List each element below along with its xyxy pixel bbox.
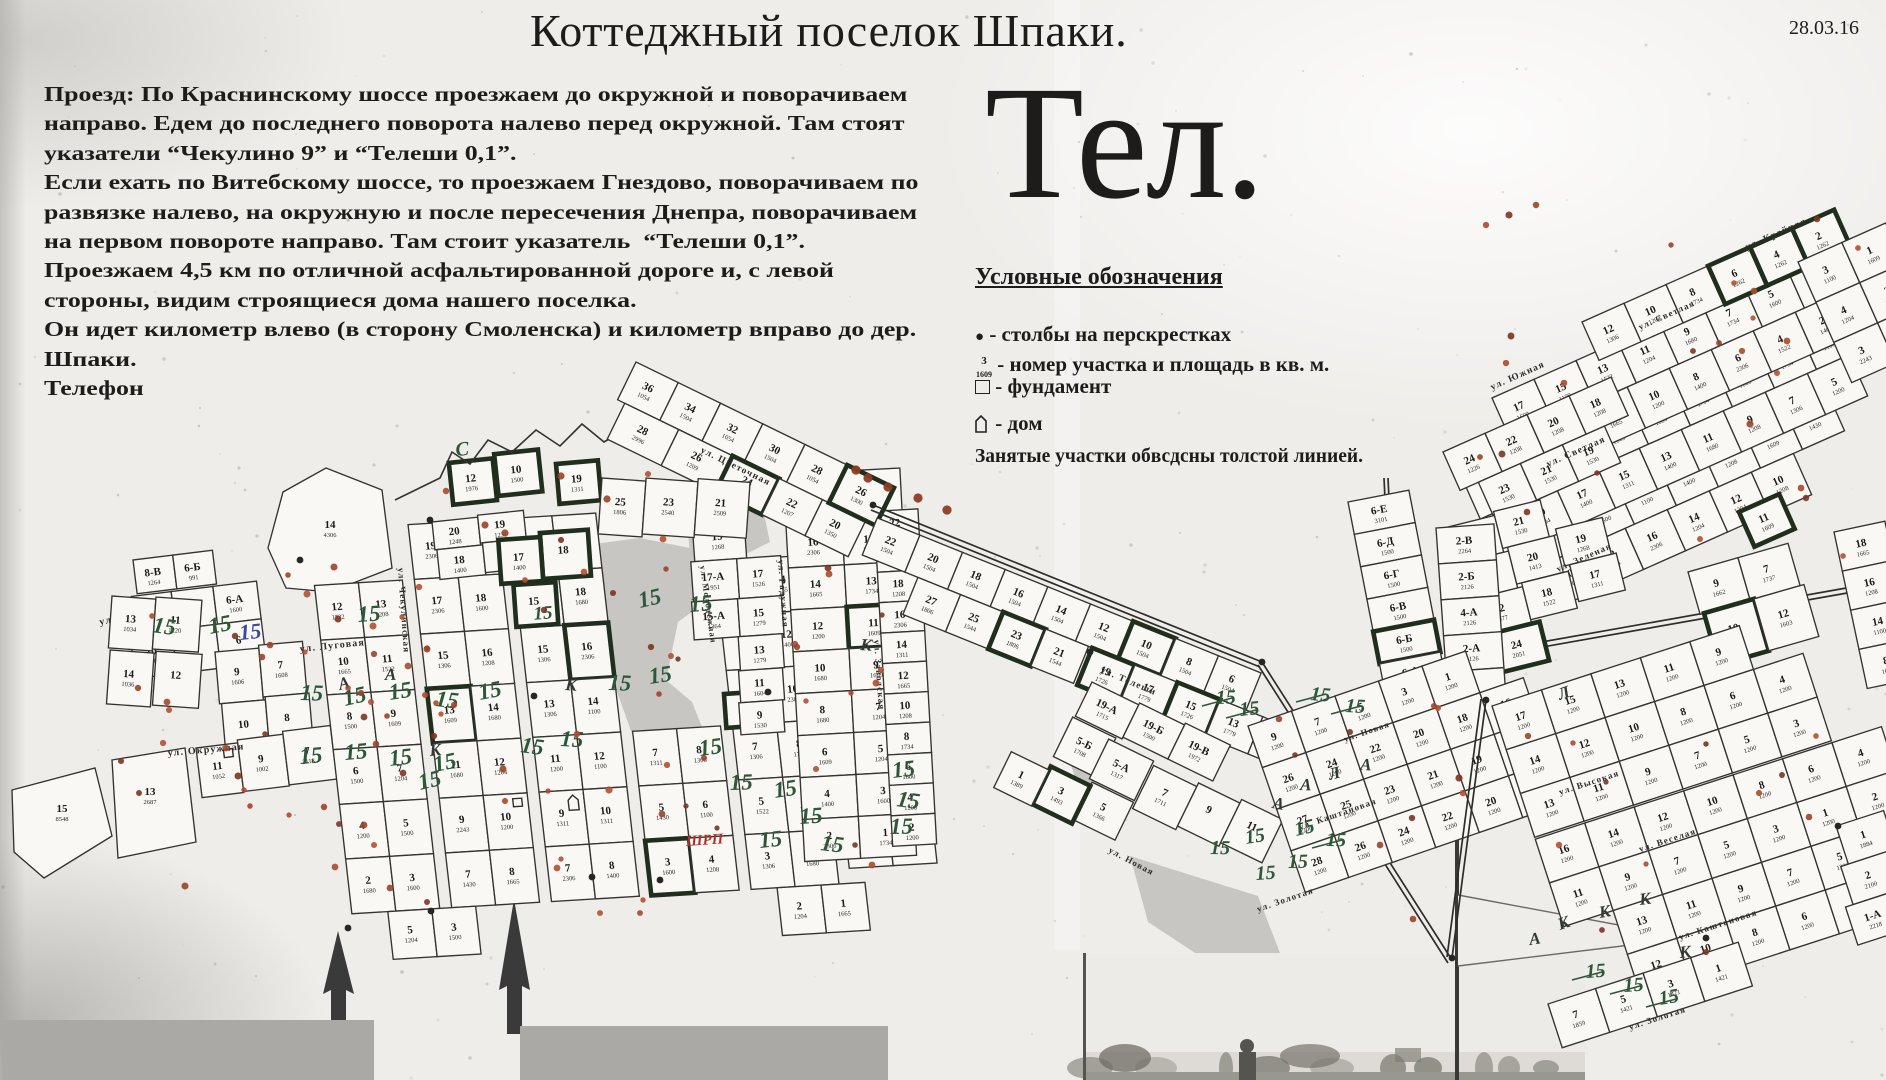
svg-text:15: 15 — [1255, 862, 1276, 885]
svg-text:15: 15 — [434, 686, 459, 713]
svg-text:1680: 1680 — [363, 887, 377, 895]
svg-text:1200: 1200 — [500, 824, 514, 832]
svg-text:10: 10 — [510, 463, 523, 476]
svg-text:1500: 1500 — [510, 476, 524, 484]
svg-text:15: 15 — [647, 661, 674, 689]
svg-text:2243: 2243 — [456, 826, 470, 834]
svg-text:6-Б: 6-Б — [184, 561, 202, 575]
svg-text:1665: 1665 — [809, 591, 822, 599]
svg-text:15: 15 — [688, 590, 713, 617]
svg-text:1204: 1204 — [394, 775, 409, 783]
svg-text:10: 10 — [500, 811, 513, 824]
svg-text:1204: 1204 — [872, 714, 886, 722]
svg-text:2306: 2306 — [807, 549, 821, 557]
svg-text:15: 15 — [819, 830, 845, 858]
svg-text:15: 15 — [890, 814, 913, 839]
svg-text:2509: 2509 — [713, 510, 726, 518]
svg-text:2264: 2264 — [1458, 548, 1472, 556]
svg-text:1034: 1034 — [123, 626, 137, 634]
svg-text:15: 15 — [343, 738, 368, 765]
svg-text:1600: 1600 — [475, 605, 489, 613]
svg-text:1200: 1200 — [550, 766, 564, 774]
svg-text:1606: 1606 — [231, 679, 245, 687]
svg-text:14: 14 — [325, 519, 337, 531]
svg-text:1976: 1976 — [465, 485, 479, 493]
svg-text:ШРП: ШРП — [684, 831, 725, 850]
svg-text:С: С — [454, 438, 470, 461]
svg-text:6-А: 6-А — [225, 593, 243, 607]
svg-text:15: 15 — [300, 680, 324, 706]
svg-text:15: 15 — [758, 826, 783, 853]
svg-text:1248: 1248 — [448, 538, 462, 546]
svg-text:2126: 2126 — [1463, 619, 1477, 627]
svg-text:1311: 1311 — [571, 486, 584, 494]
svg-text:1204: 1204 — [794, 913, 809, 921]
svg-text:18: 18 — [557, 544, 569, 557]
svg-text:1680: 1680 — [814, 675, 827, 683]
svg-text:2540: 2540 — [661, 509, 674, 517]
svg-text:1279: 1279 — [753, 657, 766, 665]
svg-text:1680: 1680 — [488, 714, 502, 722]
svg-text:18: 18 — [892, 578, 904, 591]
svg-text:1208: 1208 — [899, 713, 912, 721]
svg-text:17: 17 — [752, 568, 764, 581]
svg-text:1522: 1522 — [756, 808, 770, 816]
svg-text:16: 16 — [481, 647, 494, 660]
svg-text:15: 15 — [476, 676, 503, 705]
svg-text:11: 11 — [212, 760, 224, 773]
svg-text:14: 14 — [809, 578, 821, 591]
svg-text:А: А — [1299, 775, 1312, 794]
svg-text:15: 15 — [151, 612, 177, 640]
svg-text:991: 991 — [188, 574, 199, 582]
svg-text:1306: 1306 — [762, 863, 777, 871]
svg-text:1500: 1500 — [350, 778, 364, 786]
svg-text:1306: 1306 — [749, 753, 764, 761]
svg-text:2126: 2126 — [1460, 583, 1474, 591]
svg-text:1279: 1279 — [753, 620, 766, 628]
svg-text:2306: 2306 — [562, 875, 577, 883]
svg-text:1204: 1204 — [404, 937, 419, 945]
svg-text:1600: 1600 — [406, 885, 420, 893]
svg-text:15: 15 — [1623, 974, 1644, 997]
svg-text:1500: 1500 — [400, 830, 414, 838]
svg-text:14: 14 — [587, 695, 600, 708]
svg-text:1609: 1609 — [819, 759, 832, 767]
svg-text:1400: 1400 — [513, 564, 526, 572]
svg-text:13: 13 — [753, 644, 765, 657]
svg-text:15: 15 — [1326, 829, 1346, 851]
svg-text:1806: 1806 — [613, 509, 627, 517]
svg-text:1400: 1400 — [606, 872, 620, 880]
svg-text:1208: 1208 — [481, 660, 495, 668]
svg-text:1311: 1311 — [650, 760, 664, 768]
svg-text:16: 16 — [581, 641, 594, 654]
svg-text:4-А: 4-А — [1460, 606, 1478, 619]
svg-text:15: 15 — [519, 732, 545, 760]
svg-text:1526: 1526 — [752, 581, 766, 589]
svg-text:12: 12 — [593, 750, 606, 763]
svg-text:15: 15 — [697, 733, 723, 761]
svg-text:15: 15 — [298, 742, 323, 769]
svg-text:17: 17 — [431, 595, 444, 608]
svg-text:2687: 2687 — [144, 799, 158, 806]
svg-text:12: 12 — [465, 472, 478, 485]
svg-text:10: 10 — [814, 662, 826, 675]
svg-text:13: 13 — [865, 575, 877, 588]
svg-text:2-Б: 2-Б — [1458, 570, 1475, 583]
svg-text:1311: 1311 — [600, 818, 614, 826]
svg-text:1200: 1200 — [812, 633, 825, 641]
svg-text:12: 12 — [331, 601, 344, 614]
svg-text:13: 13 — [543, 698, 556, 711]
svg-text:2306: 2306 — [894, 622, 908, 630]
svg-text:25: 25 — [614, 496, 626, 509]
svg-text:2306: 2306 — [581, 653, 596, 661]
svg-text:А: А — [1359, 755, 1372, 774]
svg-text:21: 21 — [715, 497, 727, 510]
svg-text:1734: 1734 — [901, 743, 915, 751]
svg-text:1400: 1400 — [453, 567, 467, 575]
svg-text:1400: 1400 — [821, 801, 834, 809]
svg-text:1200: 1200 — [356, 833, 370, 841]
svg-text:20: 20 — [448, 525, 461, 538]
svg-text:1430: 1430 — [462, 881, 476, 889]
svg-text:1208: 1208 — [706, 866, 720, 874]
svg-text:17: 17 — [513, 551, 525, 564]
svg-text:13: 13 — [125, 613, 137, 626]
svg-text:1734: 1734 — [865, 588, 879, 596]
svg-text:10: 10 — [599, 805, 612, 818]
svg-text:1734: 1734 — [879, 840, 893, 848]
svg-text:1306: 1306 — [437, 662, 452, 670]
svg-text:15: 15 — [533, 602, 554, 624]
svg-text:18: 18 — [574, 586, 587, 599]
svg-text:1500: 1500 — [344, 723, 358, 731]
svg-text:23: 23 — [663, 496, 675, 509]
svg-text:1: 1 — [882, 827, 888, 839]
svg-text:15: 15 — [388, 743, 414, 771]
svg-text:1311: 1311 — [896, 652, 909, 660]
svg-text:1665: 1665 — [897, 683, 910, 691]
svg-text:1680: 1680 — [575, 599, 589, 607]
svg-text:1208: 1208 — [892, 591, 905, 599]
svg-text:13: 13 — [145, 786, 157, 798]
svg-text:ул. Золотая: ул. Золотая — [1255, 885, 1315, 914]
svg-text:10: 10 — [337, 655, 350, 668]
svg-text:1268: 1268 — [711, 544, 724, 552]
svg-text:1608: 1608 — [275, 672, 289, 680]
svg-text:1530: 1530 — [754, 722, 767, 730]
svg-text:15: 15 — [772, 775, 799, 803]
svg-text:15: 15 — [1345, 695, 1366, 718]
svg-text:1100: 1100 — [587, 708, 601, 716]
svg-text:1609: 1609 — [444, 717, 458, 725]
svg-text:1665: 1665 — [506, 878, 520, 886]
svg-text:ул. Новая: ул. Новая — [1107, 845, 1156, 877]
svg-text:15: 15 — [895, 786, 921, 814]
svg-text:18: 18 — [475, 592, 488, 605]
svg-text:11: 11 — [381, 653, 393, 666]
svg-text:15: 15 — [560, 726, 584, 752]
svg-text:1306: 1306 — [543, 711, 558, 719]
svg-text:1500: 1500 — [448, 934, 462, 942]
svg-text:15: 15 — [891, 755, 917, 783]
svg-text:1036: 1036 — [121, 681, 135, 689]
svg-text:15: 15 — [387, 677, 414, 705]
svg-text:15: 15 — [537, 643, 550, 656]
svg-text:12: 12 — [897, 670, 909, 683]
svg-text:18: 18 — [453, 554, 466, 567]
svg-text:8-В: 8-В — [144, 566, 162, 580]
svg-text:4306: 4306 — [324, 532, 338, 539]
svg-text:8548: 8548 — [56, 816, 69, 823]
svg-text:1600: 1600 — [662, 869, 676, 877]
svg-text:15: 15 — [753, 607, 765, 620]
svg-text:2306: 2306 — [431, 608, 446, 616]
svg-text:12: 12 — [812, 620, 824, 633]
svg-text:1311: 1311 — [556, 820, 570, 828]
svg-text:19: 19 — [570, 473, 583, 486]
svg-text:15: 15 — [238, 618, 262, 645]
svg-text:11: 11 — [550, 753, 562, 766]
svg-text:14: 14 — [896, 639, 908, 652]
svg-text:15: 15 — [608, 670, 632, 696]
svg-text:1665: 1665 — [838, 910, 852, 918]
svg-text:15: 15 — [357, 600, 382, 627]
svg-text:15: 15 — [206, 610, 233, 639]
svg-text:15: 15 — [799, 802, 824, 829]
svg-text:14: 14 — [123, 668, 135, 681]
svg-text:15: 15 — [57, 803, 69, 815]
svg-text:1306: 1306 — [537, 656, 552, 664]
svg-text:15: 15 — [1238, 697, 1260, 721]
svg-text:12: 12 — [170, 669, 182, 682]
svg-text:1100: 1100 — [700, 812, 714, 820]
svg-text:15: 15 — [729, 769, 753, 795]
svg-text:15: 15 — [1288, 851, 1308, 873]
svg-text:2-В: 2-В — [1455, 534, 1473, 547]
svg-text:15: 15 — [437, 649, 450, 662]
svg-text:1600: 1600 — [877, 798, 890, 806]
svg-text:1100: 1100 — [594, 763, 608, 771]
svg-text:10: 10 — [237, 718, 250, 731]
svg-text:1680: 1680 — [816, 717, 829, 725]
svg-text:15: 15 — [1210, 837, 1230, 859]
svg-text:15: 15 — [1215, 686, 1236, 709]
svg-text:11: 11 — [868, 617, 879, 630]
svg-text:11: 11 — [754, 677, 765, 690]
svg-text:1609: 1609 — [388, 720, 402, 728]
svg-text:1204: 1204 — [875, 756, 889, 764]
svg-text:15: 15 — [1657, 985, 1681, 1010]
svg-text:15: 15 — [1243, 824, 1266, 849]
svg-text:15: 15 — [1585, 960, 1606, 983]
svg-text:10: 10 — [899, 700, 911, 713]
